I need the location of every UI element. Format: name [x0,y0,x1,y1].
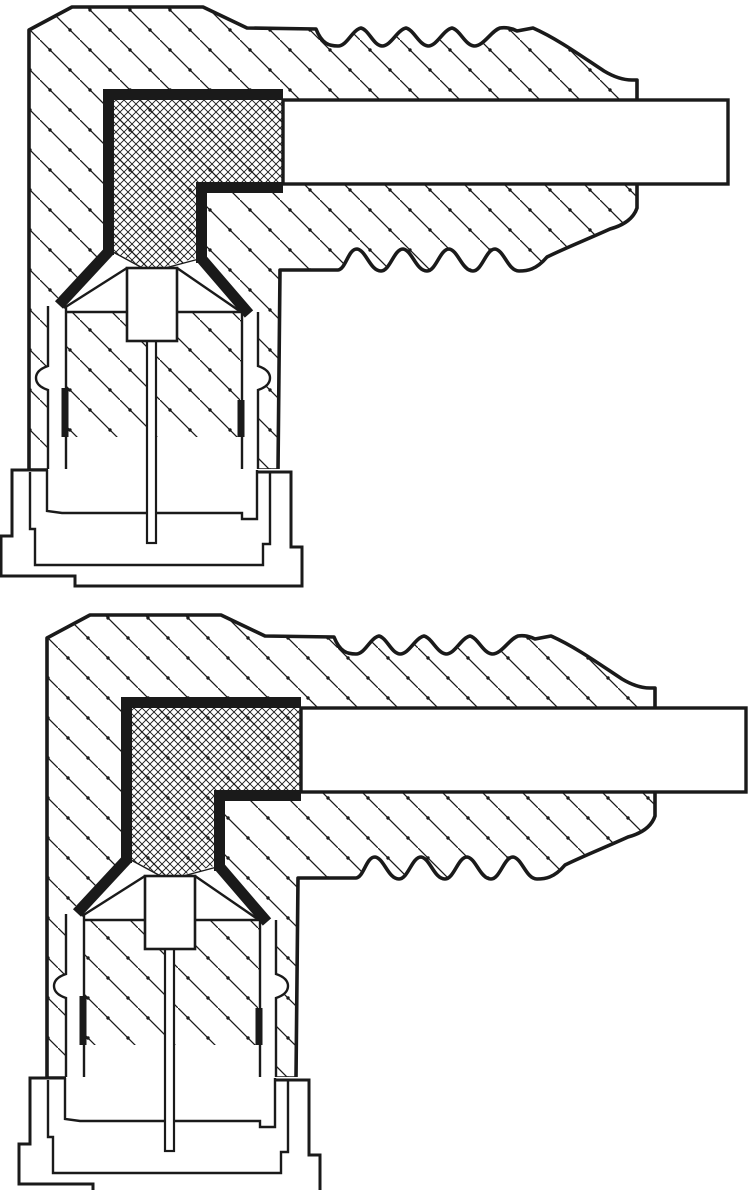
technical-diagram-canvas [0,0,750,1190]
diagram-page [0,0,750,1190]
lower-connector-figure [19,615,746,1190]
upper-connector-figure [1,7,728,586]
